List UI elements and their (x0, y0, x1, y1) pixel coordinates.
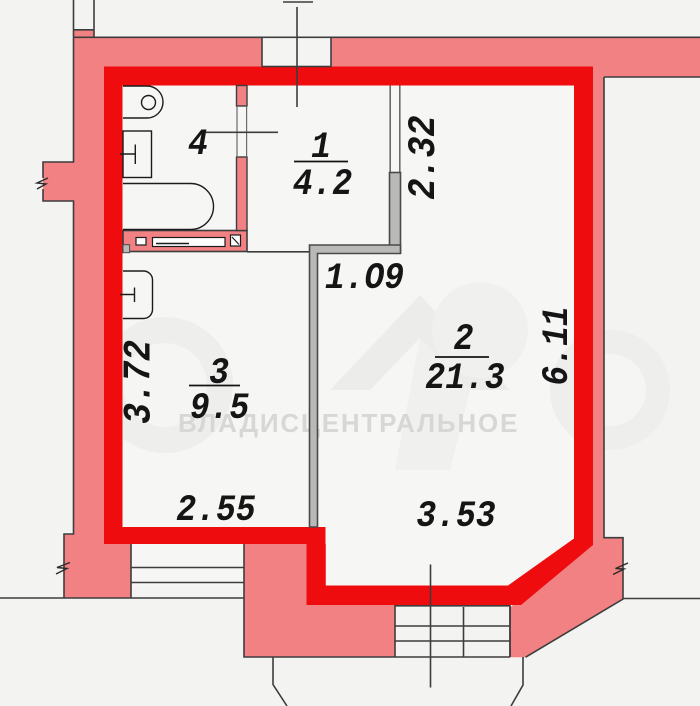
svg-text:3.72: 3.72 (118, 340, 162, 424)
svg-text:4: 4 (188, 123, 208, 165)
svg-text:21.3: 21.3 (425, 357, 504, 399)
svg-text:2: 2 (454, 318, 474, 360)
svg-text:9.5: 9.5 (190, 387, 249, 429)
svg-text:4.2: 4.2 (293, 163, 352, 205)
svg-text:2.55: 2.55 (176, 489, 255, 531)
svg-text:2.32: 2.32 (402, 116, 446, 200)
svg-text:1.O9: 1.O9 (325, 257, 404, 299)
svg-text:6.11: 6.11 (536, 306, 578, 385)
svg-text:3.53: 3.53 (416, 495, 495, 537)
